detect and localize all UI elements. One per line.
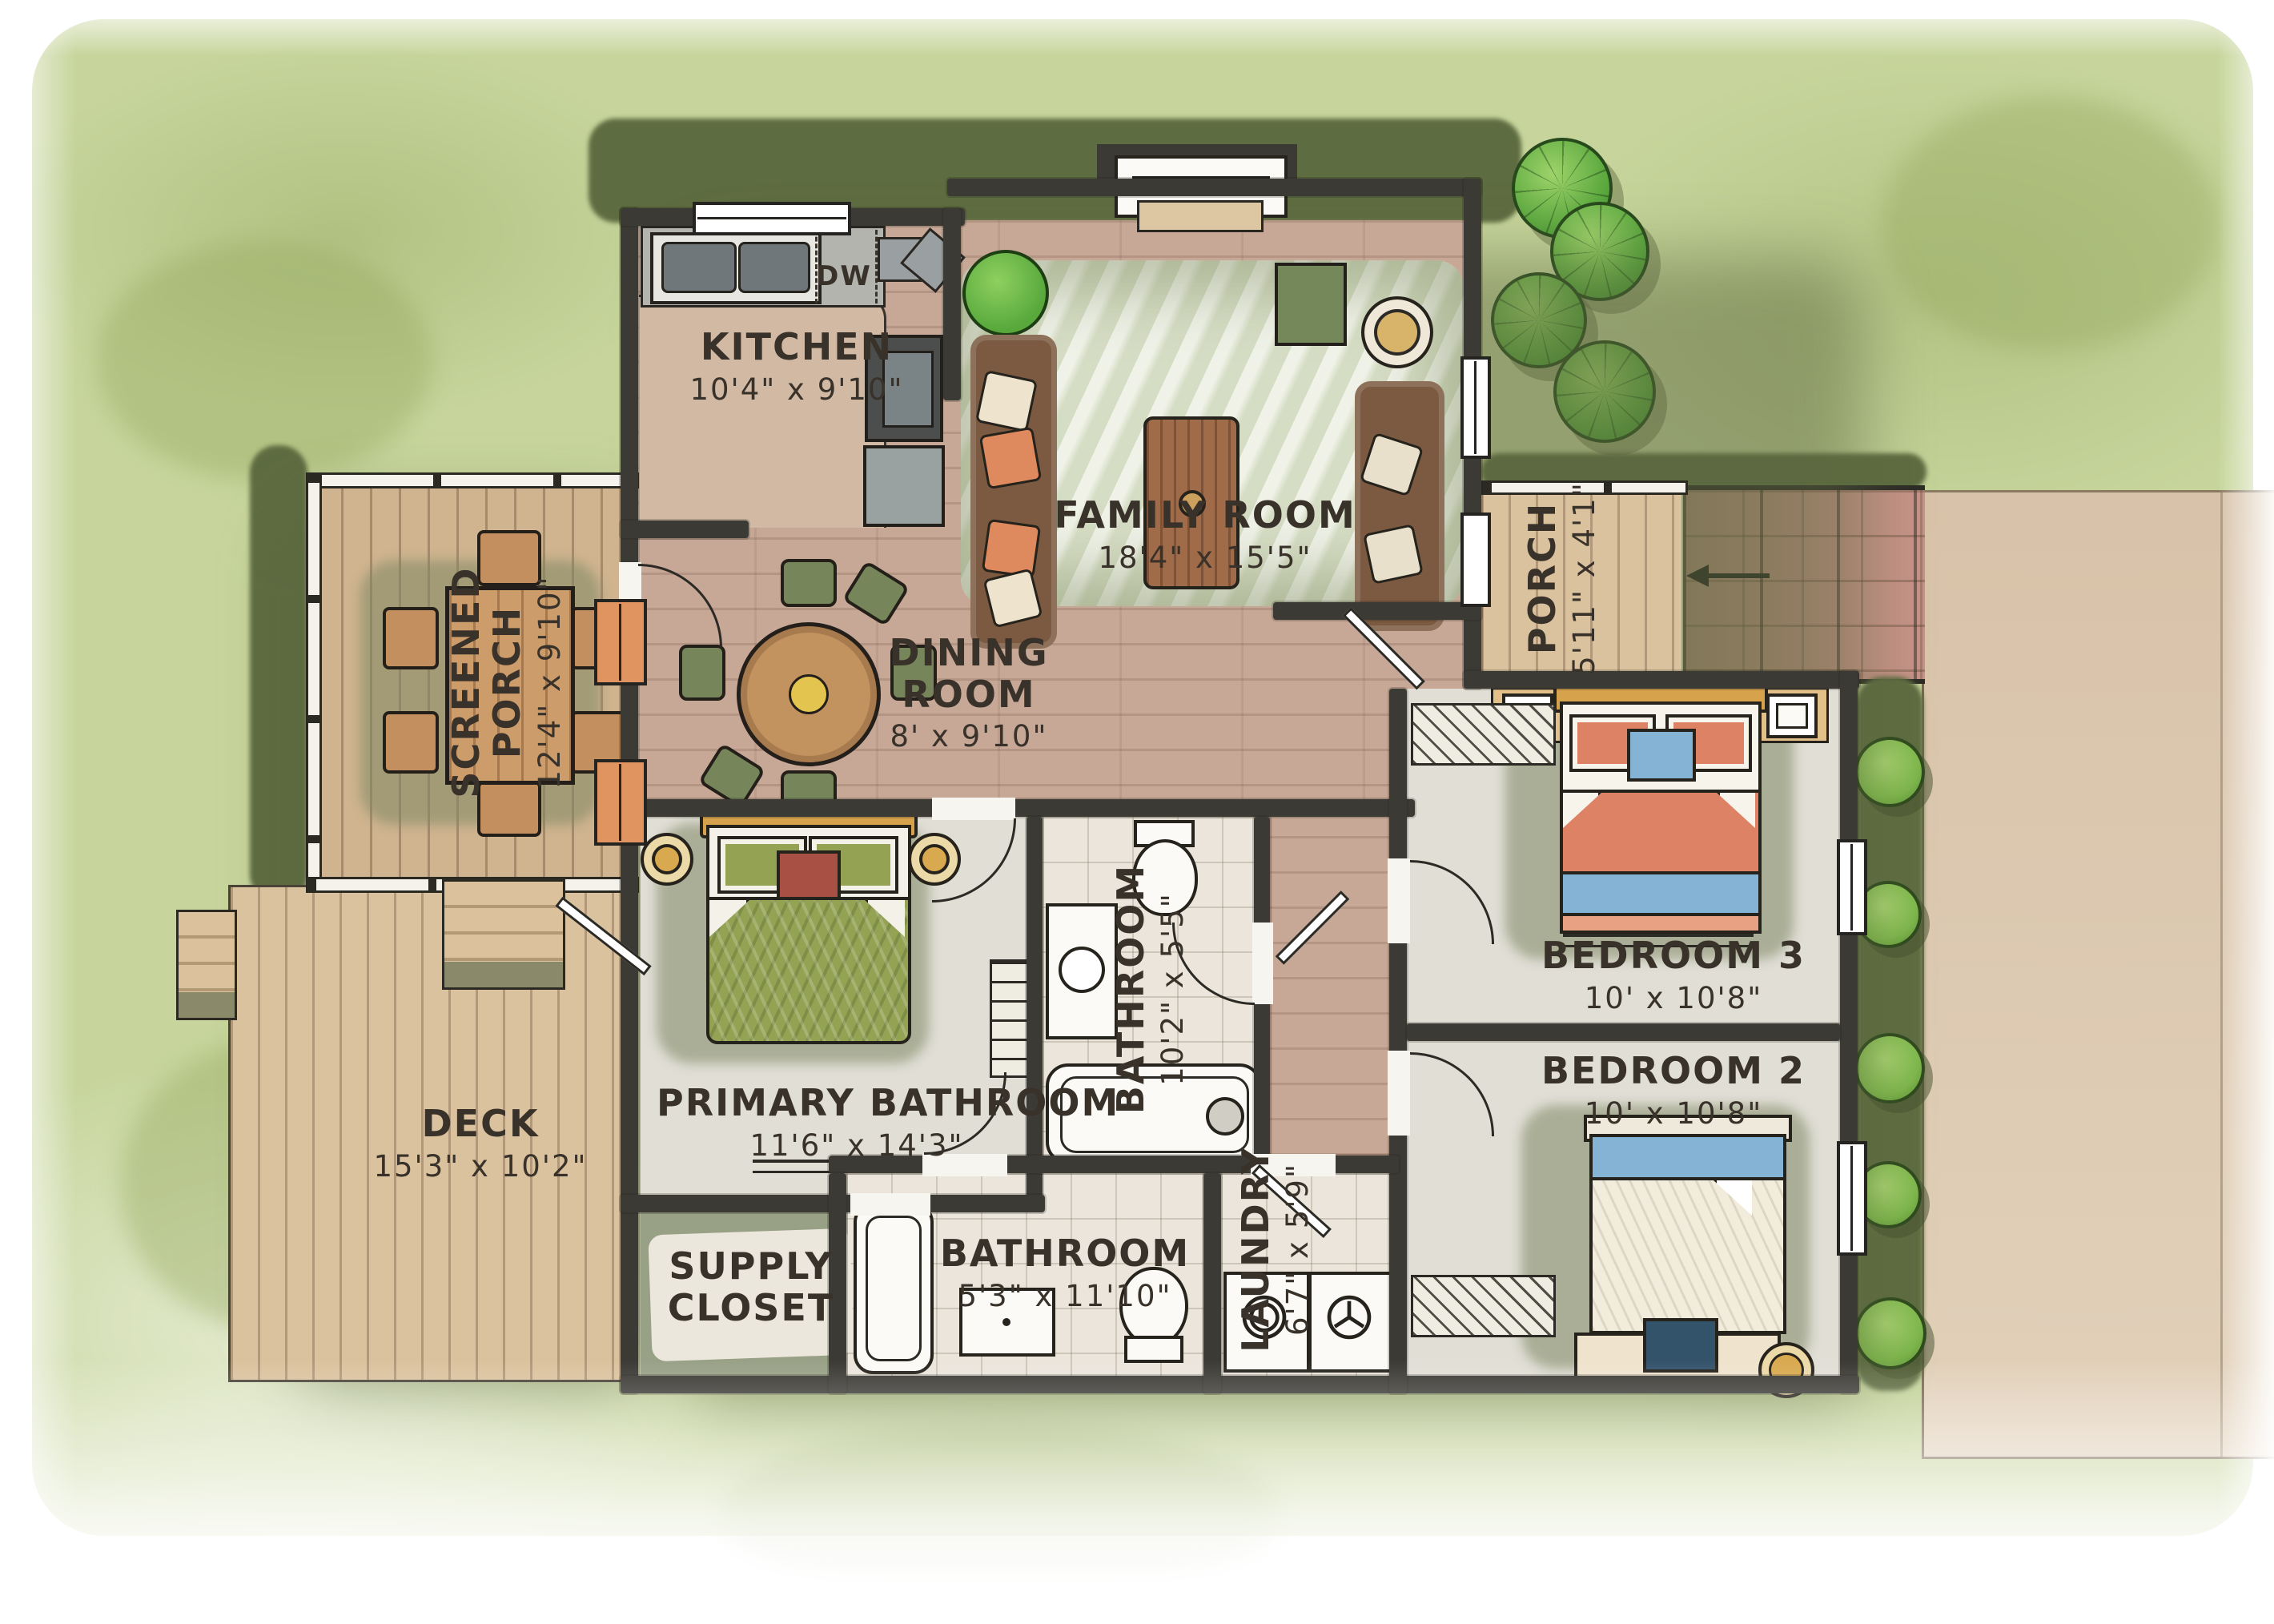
toilet-tank — [1124, 1336, 1183, 1363]
porch-chair — [383, 711, 439, 774]
closet-rod — [1411, 1275, 1556, 1337]
window — [1837, 839, 1867, 935]
room-name: LAUNDRY — [1235, 1146, 1277, 1353]
door-gap — [1388, 1051, 1410, 1136]
room-label-dining-room: DINING ROOM 8' x 9'10" — [873, 633, 1065, 753]
porch-steps — [442, 879, 565, 990]
porch-chair — [383, 607, 439, 669]
room-label-hall-bathroom: BATHROOM 10'2" x 5'5" — [1102, 821, 1198, 1157]
wall — [943, 208, 961, 400]
room-label-laundry: LAUNDRY 6'7" x 5'9" — [1231, 1117, 1319, 1381]
room-name: PORCH — [1522, 502, 1564, 655]
wall — [1273, 602, 1481, 620]
kitchen-sink — [650, 232, 822, 304]
room-name: DECK — [344, 1103, 617, 1145]
closet-rod — [1411, 703, 1556, 766]
primary-duvet — [706, 897, 911, 1044]
room-dims: 10' x 10'8" — [1505, 982, 1842, 1015]
room-label-main-bathroom: BATHROOM 5'3" x 11'10" — [897, 1233, 1233, 1312]
room-label-bedroom-2: BEDROOM 2 10' x 10'8" — [1505, 1051, 1842, 1130]
wall — [1389, 689, 1407, 1393]
room-dims: 10' x 10'8" — [1505, 1097, 1842, 1130]
room-label-deck: DECK 15'3" x 10'2" — [344, 1103, 617, 1183]
room-dims: 10'2" x 5'5" — [1156, 892, 1189, 1086]
lawn-patch — [1882, 96, 2218, 352]
bed3-accent-pillow — [1627, 729, 1696, 782]
room-dims: 18'4" x 15'5" — [1025, 541, 1385, 574]
door-gap — [932, 798, 1015, 820]
wall — [947, 179, 1481, 196]
driveway-edge-line — [2220, 492, 2223, 1457]
wall — [1407, 1023, 1840, 1041]
window — [693, 202, 851, 235]
room-label-porch: PORCH 5'11" x 4'1" — [1509, 458, 1613, 698]
room-name: BEDROOM 3 — [1505, 935, 1842, 977]
room-dims: 5'11" x 4'1" — [1568, 481, 1601, 675]
room-dims: 8' x 9'10" — [873, 720, 1065, 753]
room-name: BEDROOM 2 — [1505, 1051, 1842, 1092]
window — [1460, 356, 1491, 459]
bed3-foot — [1560, 913, 1762, 934]
side-table — [1275, 263, 1347, 346]
porch-door — [1460, 513, 1491, 607]
dining-table — [737, 622, 881, 766]
room-dims: 12'4" x 9'10" — [533, 575, 566, 789]
dryer-icon — [1308, 1272, 1395, 1373]
door-gap — [1388, 858, 1410, 943]
bed2-duvet — [1589, 1177, 1786, 1334]
nightstand-top — [1766, 693, 1818, 738]
lawn-patch — [96, 240, 432, 480]
hearth — [1137, 200, 1264, 232]
dining-chair — [679, 645, 725, 701]
wall — [1840, 671, 1858, 1393]
wall — [621, 799, 1415, 817]
tv-icon — [1643, 1318, 1718, 1373]
pillow — [975, 370, 1038, 432]
door-gap — [1252, 923, 1273, 1004]
floor-plan-canvas: DW — [0, 0, 2274, 1624]
dishwasher-label: DW — [812, 261, 876, 291]
room-name: PRIMARY BATHROOM — [657, 1083, 1057, 1124]
lawn-patch — [721, 1425, 1281, 1602]
room-name: BATHROOM — [897, 1233, 1233, 1275]
primary-accent-pillow — [777, 850, 841, 902]
room-label-primary-bedroom: PRIMARY BATHROOM 11'6" x 14'3" — [657, 1083, 1057, 1162]
room-label-supply-closet: SUPPLY CLOSET — [655, 1246, 847, 1329]
sink-basin — [738, 242, 810, 293]
room-label-screened-porch: SCREENED PORCH 12'4" x 9'10" — [438, 514, 574, 850]
potted-plant-icon — [962, 250, 1049, 336]
basket-chair — [1361, 296, 1433, 368]
sink-bowl — [1059, 947, 1105, 993]
door-gap — [850, 1193, 930, 1216]
screen-rail-left — [306, 472, 322, 893]
window-seat — [594, 759, 647, 846]
wall — [621, 521, 749, 538]
deck-steps — [176, 910, 237, 1020]
room-name: SUPPLY CLOSET — [655, 1246, 847, 1329]
sink-basin — [661, 242, 737, 293]
room-label-kitchen: KITCHEN 10'4" x 9'10" — [665, 327, 929, 406]
driveway — [1922, 490, 2274, 1459]
screen-rail-top — [311, 472, 639, 488]
room-dims: 11'6" x 14'3" — [657, 1129, 1057, 1162]
room-dims: 5'3" x 11'10" — [897, 1280, 1233, 1312]
window — [1837, 1141, 1867, 1256]
pillow — [979, 427, 1043, 490]
refrigerator — [863, 445, 945, 527]
table-centerpiece — [789, 674, 829, 714]
room-dims: 6'7" x 5'9" — [1281, 1163, 1314, 1336]
nightstand-round — [641, 833, 693, 886]
sink-drain — [1002, 1318, 1010, 1326]
dining-chair — [781, 559, 837, 607]
room-name: BATHROOM — [1111, 864, 1152, 1114]
room-name: KITCHEN — [665, 327, 929, 368]
room-name: FAMILY ROOM — [1025, 495, 1385, 537]
room-dims: 10'4" x 9'10" — [665, 373, 929, 406]
dryer-drum-icon — [1318, 1286, 1380, 1349]
room-name: DINING ROOM — [873, 633, 1065, 715]
room-label-family-room: FAMILY ROOM 18'4" x 15'5" — [1025, 495, 1385, 574]
room-label-bedroom-3: BEDROOM 3 10' x 10'8" — [1505, 935, 1842, 1015]
room-dims: 15'3" x 10'2" — [344, 1150, 617, 1183]
room-name: SCREENED PORCH — [446, 514, 528, 850]
